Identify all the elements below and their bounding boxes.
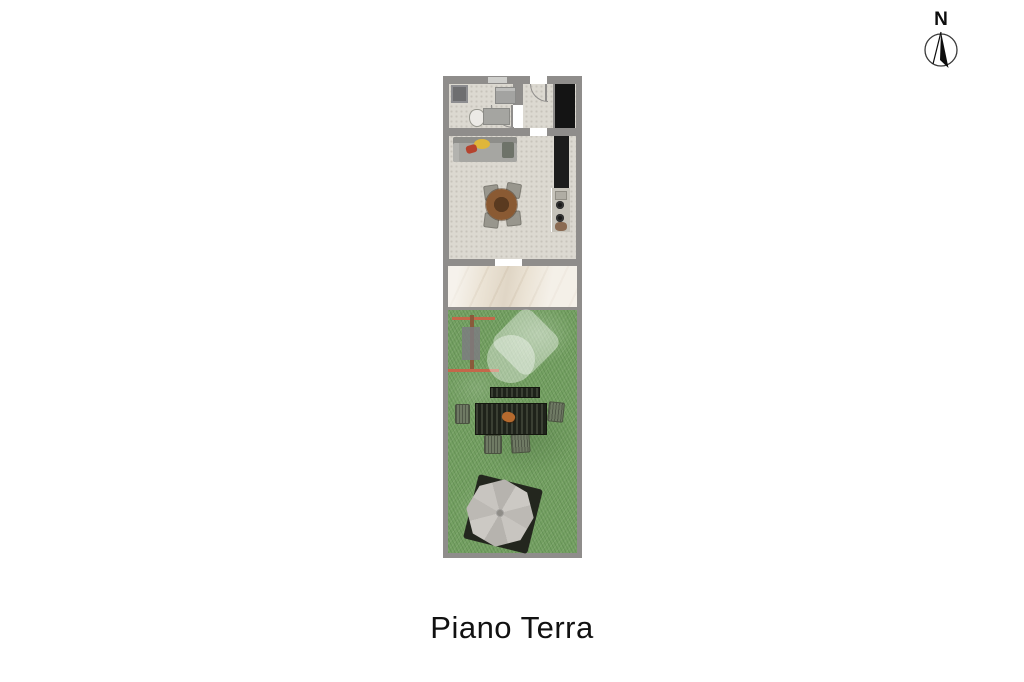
patio-section xyxy=(443,266,582,310)
stair-void xyxy=(553,84,575,128)
sink-vanity xyxy=(483,108,510,125)
outdoor-chair xyxy=(455,404,470,424)
wall-bottom-right xyxy=(522,259,582,266)
kitchen-tall-units xyxy=(554,136,569,188)
wall-left xyxy=(443,76,449,266)
patio-wall-right xyxy=(577,266,582,307)
compass: N xyxy=(918,10,964,78)
garden-wall-right xyxy=(577,310,582,558)
kitchen-sink xyxy=(555,191,567,200)
bathroom-window xyxy=(488,77,507,83)
garden-wall-left xyxy=(443,310,448,558)
floor-plan xyxy=(443,76,582,558)
building-section xyxy=(443,76,582,266)
wall-mid-left xyxy=(449,128,530,136)
entry-door-leaf xyxy=(545,84,547,101)
plan-title: Piano Terra xyxy=(0,610,1024,646)
bathroom-door-opening xyxy=(513,105,523,128)
garden-wall-bottom xyxy=(443,553,582,558)
cooktop-burner xyxy=(556,201,564,209)
garden-section xyxy=(443,310,582,558)
floorplan-canvas: N xyxy=(0,0,1024,682)
wall-mid-right xyxy=(547,128,576,136)
garden-rack-panel xyxy=(462,327,480,360)
kitchen-counter xyxy=(551,188,570,232)
bathroom-door-leaf xyxy=(511,105,513,127)
compass-needle-icon xyxy=(921,30,961,72)
shower xyxy=(451,85,468,103)
outdoor-bench xyxy=(490,387,540,398)
north-label: N xyxy=(918,10,964,30)
patio-paving xyxy=(448,266,577,307)
counter-item xyxy=(555,222,567,231)
entry-door-opening xyxy=(530,76,547,84)
wall-top xyxy=(443,76,582,84)
patio-door-opening xyxy=(495,259,522,266)
outdoor-chair xyxy=(547,401,565,423)
round-dining-table xyxy=(486,189,517,220)
hall-passage-opening xyxy=(530,128,547,136)
washing-machine xyxy=(495,87,516,104)
outdoor-chair xyxy=(510,433,530,453)
wall-bottom-left xyxy=(443,259,495,266)
outdoor-chair xyxy=(484,435,502,454)
wall-right xyxy=(576,76,582,266)
patio-wall-left xyxy=(443,266,448,307)
cooktop-burner xyxy=(556,214,564,222)
side-table xyxy=(502,142,514,158)
watermark-circle-icon xyxy=(487,335,535,383)
parasol-pole xyxy=(497,510,504,517)
